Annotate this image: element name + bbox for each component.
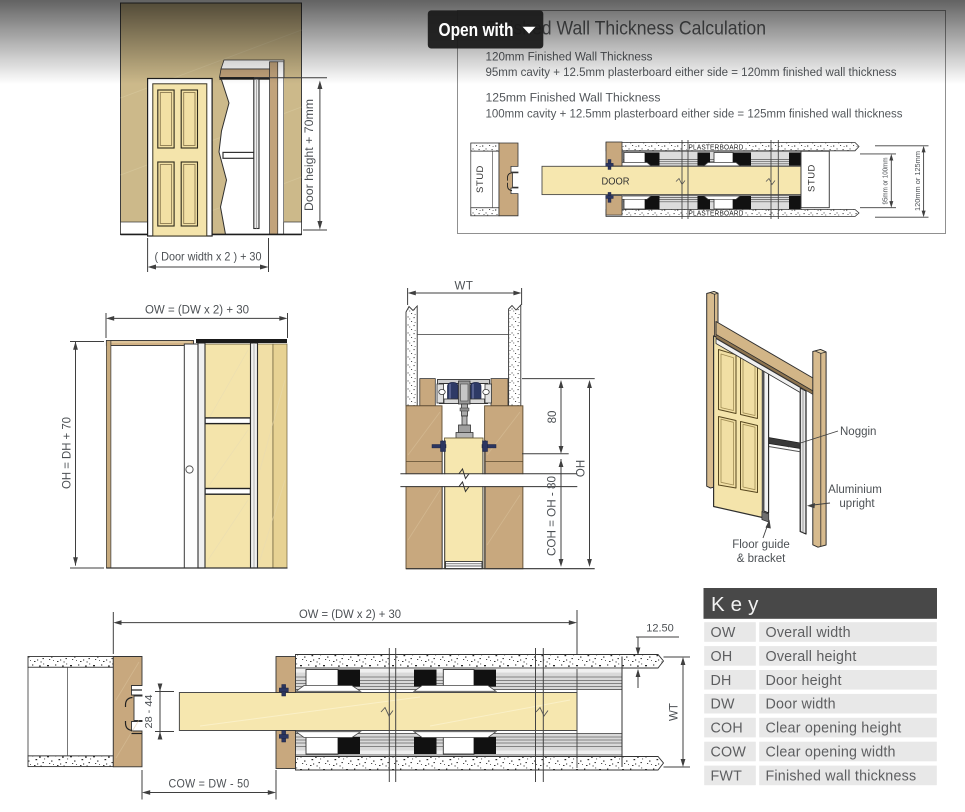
svg-text:OW = (DW x 2) + 30: OW = (DW x 2) + 30 (145, 305, 249, 317)
svg-text:100mm cavity + 12.5mm plasterb: 100mm cavity + 12.5mm plasterboard eithe… (486, 107, 903, 121)
svg-text:DW: DW (711, 697, 736, 713)
svg-text:& bracket: & bracket (737, 553, 786, 565)
svg-text:Key: Key (711, 593, 764, 616)
svg-text:OH: OH (711, 649, 733, 665)
svg-text:Overall height: Overall height (766, 649, 857, 665)
svg-text:28 - 44: 28 - 44 (143, 694, 155, 728)
svg-text:PLASTERBOARD: PLASTERBOARD (689, 208, 744, 217)
svg-text:Clear opening height: Clear opening height (766, 721, 902, 737)
svg-text:upright: upright (839, 498, 875, 510)
svg-text:Door height: Door height (766, 673, 842, 689)
svg-text:12.50: 12.50 (646, 623, 674, 635)
svg-text:Noggin: Noggin (840, 426, 876, 438)
svg-text:STUD: STUD (475, 165, 486, 193)
svg-text:( Door width x 2 ) + 30: ( Door width x 2 ) + 30 (155, 250, 262, 264)
svg-text:WT: WT (455, 281, 474, 293)
svg-text:Overall width: Overall width (766, 625, 851, 641)
svg-text:Floor guide: Floor guide (732, 539, 790, 551)
svg-text:95mm or 100mm: 95mm or 100mm (881, 157, 890, 204)
svg-text:Door width: Door width (766, 697, 836, 713)
svg-text:COW: COW (711, 745, 747, 761)
svg-text:Door height + 70mm: Door height + 70mm (302, 99, 316, 211)
svg-text:80: 80 (547, 411, 559, 424)
svg-text:125mm Finished Wall Thickness: 125mm Finished Wall Thickness (486, 91, 661, 105)
svg-text:OW: OW (711, 625, 736, 641)
svg-text:STUD: STUD (807, 164, 818, 192)
svg-text:WT: WT (669, 703, 681, 721)
svg-text:Open with: Open with (439, 19, 514, 40)
svg-text:COH: COH (711, 721, 743, 737)
svg-text:Aluminium: Aluminium (828, 484, 882, 496)
svg-text:120mm or 125mm: 120mm or 125mm (913, 151, 922, 211)
svg-text:OH: OH (576, 460, 588, 477)
svg-text:OW = (DW x 2) + 30: OW = (DW x 2) + 30 (299, 609, 401, 621)
svg-text:COH = OH - 80: COH = OH - 80 (547, 476, 559, 556)
svg-text:Clear opening width: Clear opening width (766, 745, 896, 761)
svg-text:OH = DH + 70: OH = DH + 70 (62, 417, 74, 489)
svg-text:FWT: FWT (711, 768, 743, 784)
svg-text:PLASTERBOARD: PLASTERBOARD (689, 143, 744, 152)
svg-text:Finished wall thickness: Finished wall thickness (766, 768, 917, 784)
svg-text:COW = DW - 50: COW = DW - 50 (169, 779, 250, 791)
svg-text:DOOR: DOOR (602, 176, 630, 188)
svg-text:DH: DH (711, 673, 732, 689)
